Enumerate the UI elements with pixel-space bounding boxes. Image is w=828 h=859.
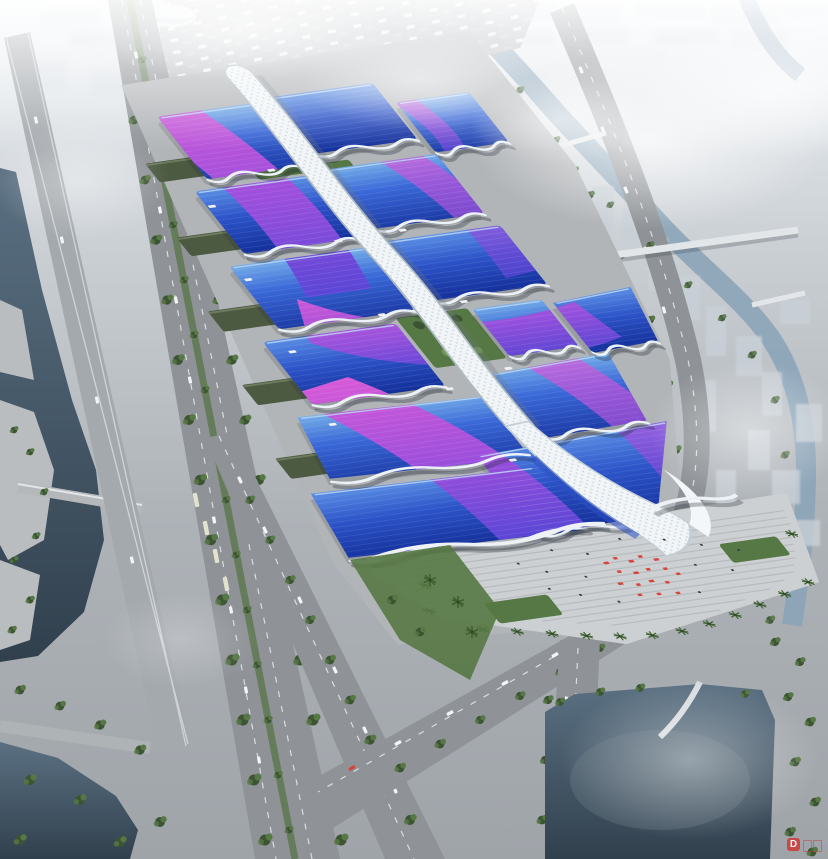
watermark-logo: D — [787, 838, 800, 851]
scene-canvas — [0, 0, 828, 859]
watermark-glyph — [813, 840, 822, 852]
aerial-render: D — [0, 0, 828, 859]
watermark-glyph — [803, 840, 812, 852]
